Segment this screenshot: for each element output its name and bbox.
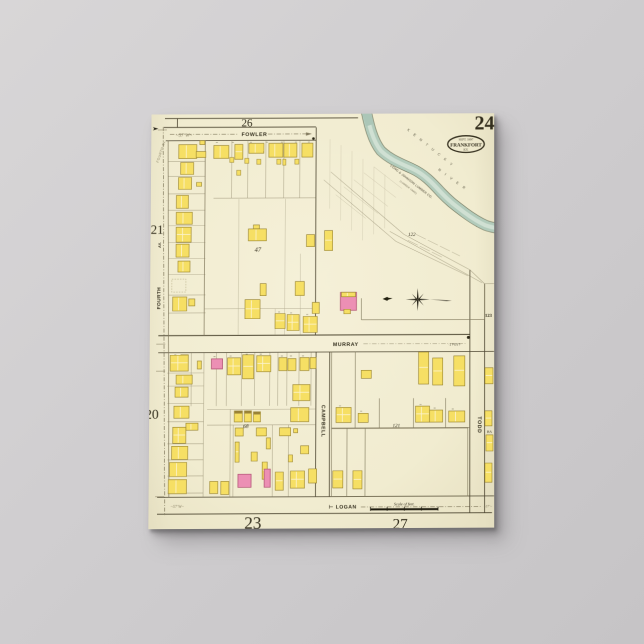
svg-text:24: 24 [475,113,495,134]
svg-text:MURRAY: MURRAY [333,342,359,348]
svg-text:AV.: AV. [158,242,162,248]
svg-text:TODD: TODD [476,416,482,433]
svg-text:23: 23 [244,513,261,529]
svg-text:·1 POST·: ·1 POST· [448,342,461,346]
svg-text:⊢ LOGAN: ⊢ LOGAN [329,502,357,510]
svg-text:FOURTH: FOURTH [156,287,162,310]
svg-text:BA: BA [487,430,492,434]
svg-text:20: 20 [148,407,159,422]
svg-text:FOWLER: FOWLER [242,132,268,138]
svg-text:21: 21 [151,223,164,237]
svg-text:122: 122 [408,233,416,238]
svg-text:~57ʼW~: ~57ʼW~ [171,504,185,509]
svg-text:~57ʼW~: ~57ʼW~ [176,134,193,139]
svg-text:121: 121 [393,424,401,429]
svg-text:~57ʼ~: ~57ʼ~ [484,504,492,508]
svg-text:Scale of feet.: Scale of feet. [394,501,415,506]
svg-text:47: 47 [255,247,262,254]
svg-text:123: 123 [485,313,493,318]
svg-text:KY.: KY. [464,148,469,152]
svg-text:SEPT. 1897: SEPT. 1897 [459,137,474,141]
svg-text:CAMPBELL: CAMPBELL [320,405,326,437]
svg-text:26: 26 [241,117,253,129]
svg-text:68: 68 [243,424,249,430]
svg-text:27: 27 [393,517,409,529]
